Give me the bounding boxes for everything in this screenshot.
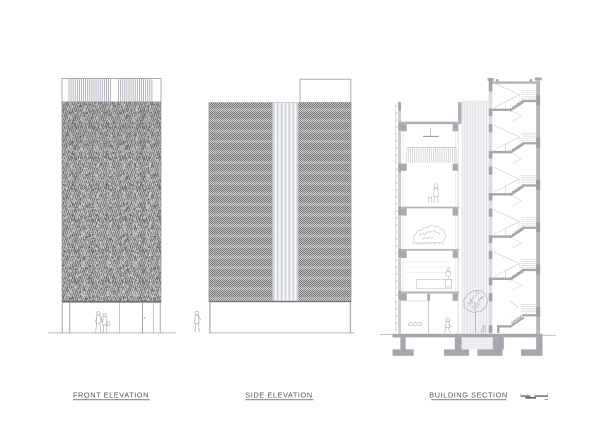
svg-text:BUILDING SECTION: BUILDING SECTION — [429, 390, 508, 399]
svg-text:FRONT ELEVATION: FRONT ELEVATION — [73, 390, 149, 399]
svg-text:SIDE ELEVATION: SIDE ELEVATION — [245, 390, 312, 399]
